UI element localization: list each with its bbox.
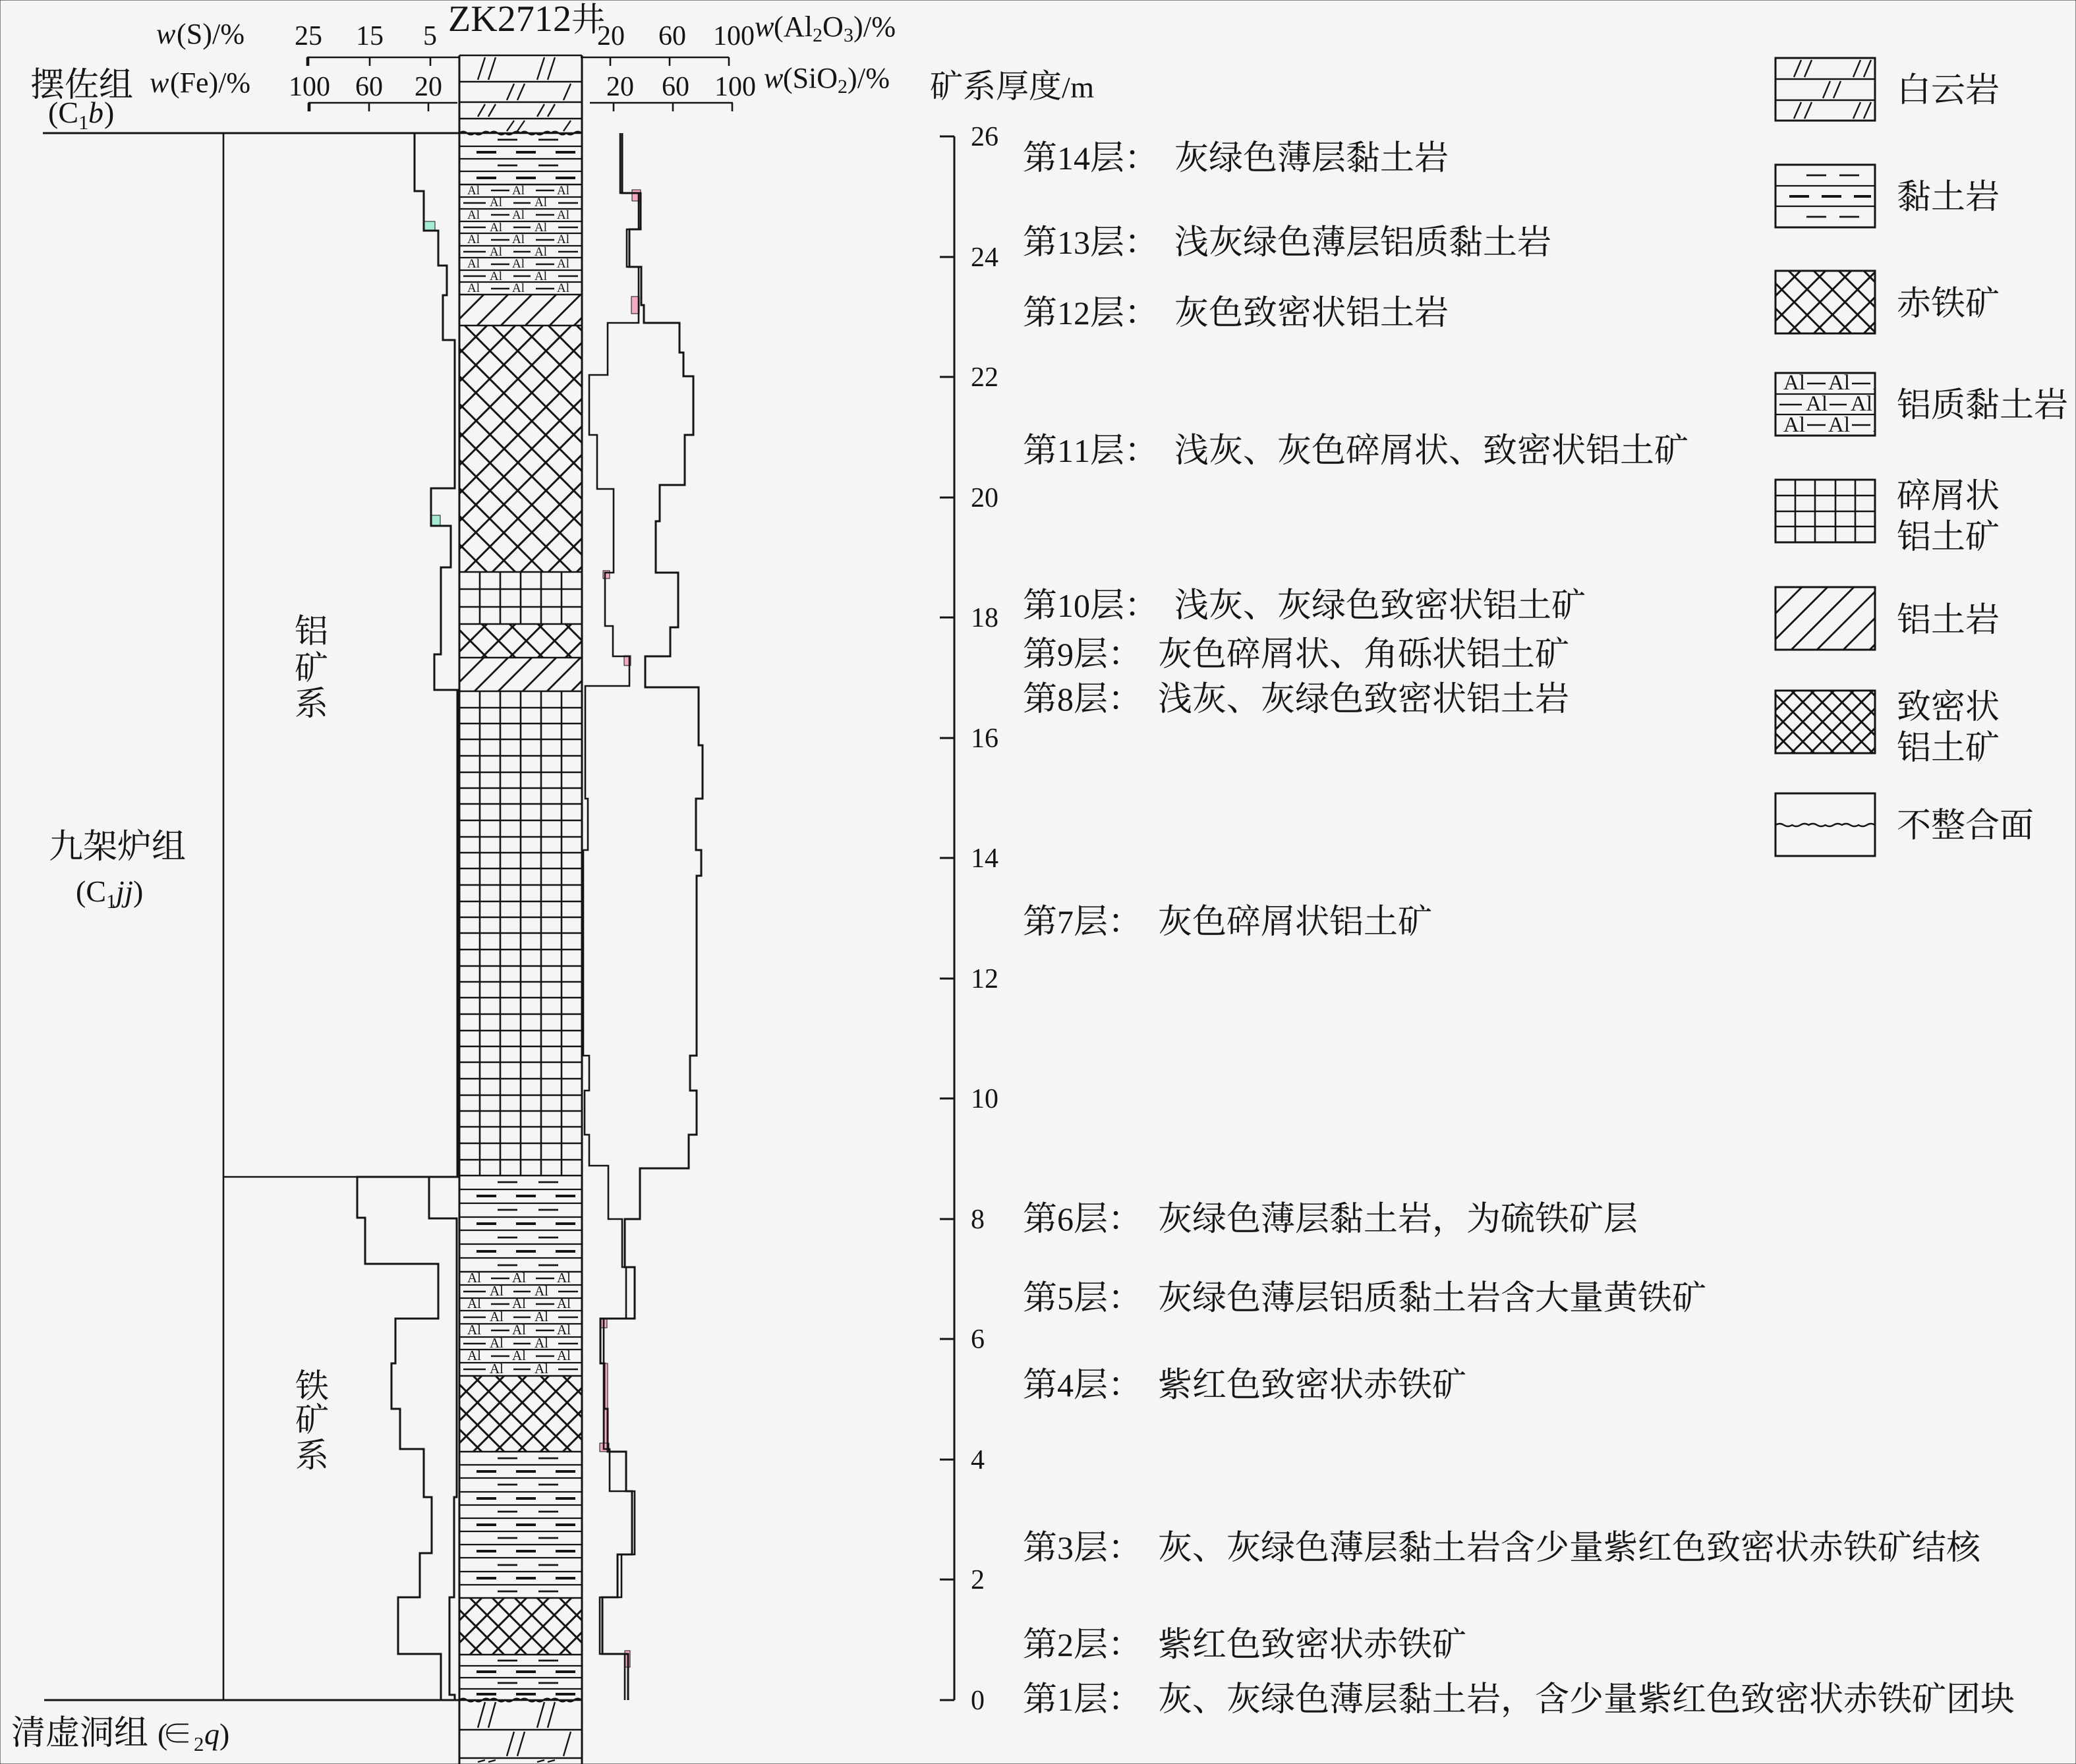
svg-text:1: 1 bbox=[78, 111, 89, 134]
svg-text:10: 10 bbox=[971, 1084, 998, 1114]
svg-text:(S)/%: (S)/% bbox=[177, 18, 245, 50]
svg-text:Al: Al bbox=[1828, 413, 1850, 437]
svg-text:Al: Al bbox=[467, 184, 480, 198]
svg-text:11: 11 bbox=[1057, 432, 1090, 469]
svg-text:)/%: )/% bbox=[853, 11, 896, 43]
svg-text:): ) bbox=[133, 874, 143, 908]
svg-text:Al: Al bbox=[557, 281, 569, 295]
svg-text:Al: Al bbox=[512, 184, 525, 198]
svg-text:3: 3 bbox=[1057, 1529, 1074, 1566]
svg-text:26: 26 bbox=[971, 122, 998, 152]
svg-text:6: 6 bbox=[971, 1324, 985, 1355]
svg-text:Al: Al bbox=[557, 184, 569, 198]
svg-text:Al: Al bbox=[467, 281, 480, 295]
svg-text:): ) bbox=[104, 96, 114, 129]
svg-text:16: 16 bbox=[971, 724, 998, 754]
svg-text:2: 2 bbox=[813, 24, 822, 46]
svg-text:8: 8 bbox=[971, 1205, 985, 1235]
svg-text:Al: Al bbox=[1783, 413, 1805, 437]
svg-text:ZK2712: ZK2712 bbox=[448, 0, 571, 40]
svg-text:Al: Al bbox=[534, 1361, 548, 1377]
svg-text:Al: Al bbox=[490, 221, 502, 235]
svg-text:w: w bbox=[755, 11, 774, 43]
svg-text:60: 60 bbox=[658, 21, 686, 51]
svg-text:(: ( bbox=[158, 1717, 167, 1751]
svg-text:(C: (C bbox=[76, 874, 106, 908]
svg-text:Al: Al bbox=[490, 1283, 504, 1299]
svg-text:14: 14 bbox=[971, 843, 998, 874]
svg-text:Al: Al bbox=[534, 1335, 548, 1351]
svg-text:Al: Al bbox=[512, 281, 525, 295]
svg-text:12: 12 bbox=[1057, 295, 1090, 331]
svg-text:): ) bbox=[219, 1717, 229, 1751]
svg-text:w: w bbox=[764, 62, 784, 94]
svg-text:60: 60 bbox=[355, 72, 383, 102]
svg-text:b: b bbox=[88, 96, 103, 129]
svg-text:Al: Al bbox=[490, 1335, 504, 1351]
svg-text:20: 20 bbox=[597, 21, 625, 51]
svg-text:Al: Al bbox=[467, 1295, 481, 1311]
svg-text:)/%: )/% bbox=[848, 62, 890, 94]
svg-text:Al: Al bbox=[490, 1309, 504, 1324]
svg-text:20: 20 bbox=[971, 483, 998, 513]
svg-text:2: 2 bbox=[838, 76, 848, 98]
svg-text:Al: Al bbox=[467, 208, 480, 222]
svg-text:Al: Al bbox=[512, 1295, 526, 1311]
svg-text:1: 1 bbox=[1057, 1681, 1074, 1718]
svg-text:Al: Al bbox=[512, 208, 525, 222]
svg-text:9: 9 bbox=[1057, 636, 1074, 673]
svg-text:Al: Al bbox=[1851, 392, 1872, 416]
svg-text:Al: Al bbox=[467, 1322, 481, 1338]
svg-text:Al: Al bbox=[557, 1348, 571, 1363]
svg-text:14: 14 bbox=[1057, 140, 1090, 177]
svg-text:100: 100 bbox=[289, 72, 330, 102]
svg-text:15: 15 bbox=[356, 21, 384, 51]
svg-text:4: 4 bbox=[1057, 1367, 1074, 1404]
svg-text:Al: Al bbox=[557, 1295, 571, 1311]
svg-text:1: 1 bbox=[106, 890, 117, 913]
svg-text:12: 12 bbox=[971, 964, 998, 994]
svg-text:O: O bbox=[822, 11, 844, 43]
svg-text:Al: Al bbox=[512, 233, 525, 246]
svg-text:Al: Al bbox=[490, 245, 502, 259]
svg-text:q: q bbox=[204, 1717, 219, 1751]
svg-text:Al: Al bbox=[534, 1283, 548, 1299]
svg-text:100: 100 bbox=[714, 72, 756, 102]
svg-text:13: 13 bbox=[1057, 224, 1090, 261]
svg-text:8: 8 bbox=[1057, 681, 1074, 718]
svg-text:0: 0 bbox=[971, 1686, 985, 1716]
svg-text:Al: Al bbox=[534, 196, 547, 210]
svg-text:18: 18 bbox=[971, 603, 998, 633]
svg-text:6: 6 bbox=[1057, 1201, 1074, 1238]
svg-text:Al: Al bbox=[512, 1322, 526, 1338]
svg-text:Al: Al bbox=[1828, 371, 1850, 395]
svg-text:4: 4 bbox=[971, 1445, 985, 1475]
svg-text:24: 24 bbox=[971, 242, 998, 273]
svg-text:Al: Al bbox=[512, 257, 525, 271]
svg-text:Al: Al bbox=[1783, 371, 1805, 395]
svg-text:Al: Al bbox=[467, 257, 480, 271]
svg-text:2: 2 bbox=[194, 1732, 204, 1755]
svg-text:Al: Al bbox=[534, 1309, 548, 1324]
svg-text:22: 22 bbox=[971, 362, 998, 393]
svg-text:jj: jj bbox=[113, 874, 133, 908]
svg-text:(C: (C bbox=[48, 96, 78, 129]
svg-text:(Fe)/%: (Fe)/% bbox=[170, 67, 250, 99]
svg-text:Al: Al bbox=[557, 257, 569, 271]
svg-text:Al: Al bbox=[534, 270, 547, 283]
svg-text:Al: Al bbox=[557, 233, 569, 246]
svg-text:25: 25 bbox=[295, 21, 322, 51]
svg-text:w: w bbox=[150, 67, 169, 99]
svg-text:Al: Al bbox=[490, 1361, 504, 1377]
svg-text:Al: Al bbox=[490, 196, 502, 210]
svg-text:20: 20 bbox=[415, 72, 442, 102]
svg-text:Al: Al bbox=[534, 245, 547, 259]
svg-text:3: 3 bbox=[844, 24, 853, 46]
svg-text:(SiO: (SiO bbox=[783, 62, 838, 94]
svg-text:20: 20 bbox=[606, 72, 634, 102]
svg-text:Al: Al bbox=[467, 233, 480, 246]
svg-text:5: 5 bbox=[1057, 1280, 1074, 1317]
svg-text:Al: Al bbox=[512, 1348, 526, 1363]
svg-text:/m: /m bbox=[1062, 71, 1094, 104]
svg-text:Al: Al bbox=[490, 270, 502, 283]
svg-text:Al: Al bbox=[557, 208, 569, 222]
svg-text:Al: Al bbox=[467, 1348, 481, 1363]
svg-text:w: w bbox=[156, 18, 176, 50]
svg-text:Al: Al bbox=[534, 221, 547, 235]
svg-text:10: 10 bbox=[1057, 587, 1090, 624]
svg-text:100: 100 bbox=[713, 21, 755, 51]
svg-text:2: 2 bbox=[971, 1565, 985, 1595]
svg-text:Al: Al bbox=[557, 1322, 571, 1338]
svg-text:(Al: (Al bbox=[774, 11, 813, 43]
svg-text:7: 7 bbox=[1057, 903, 1074, 940]
svg-text:Al: Al bbox=[1806, 392, 1828, 416]
svg-text:60: 60 bbox=[662, 72, 689, 102]
svg-text:2: 2 bbox=[1057, 1626, 1074, 1663]
svg-text:5: 5 bbox=[423, 21, 437, 51]
